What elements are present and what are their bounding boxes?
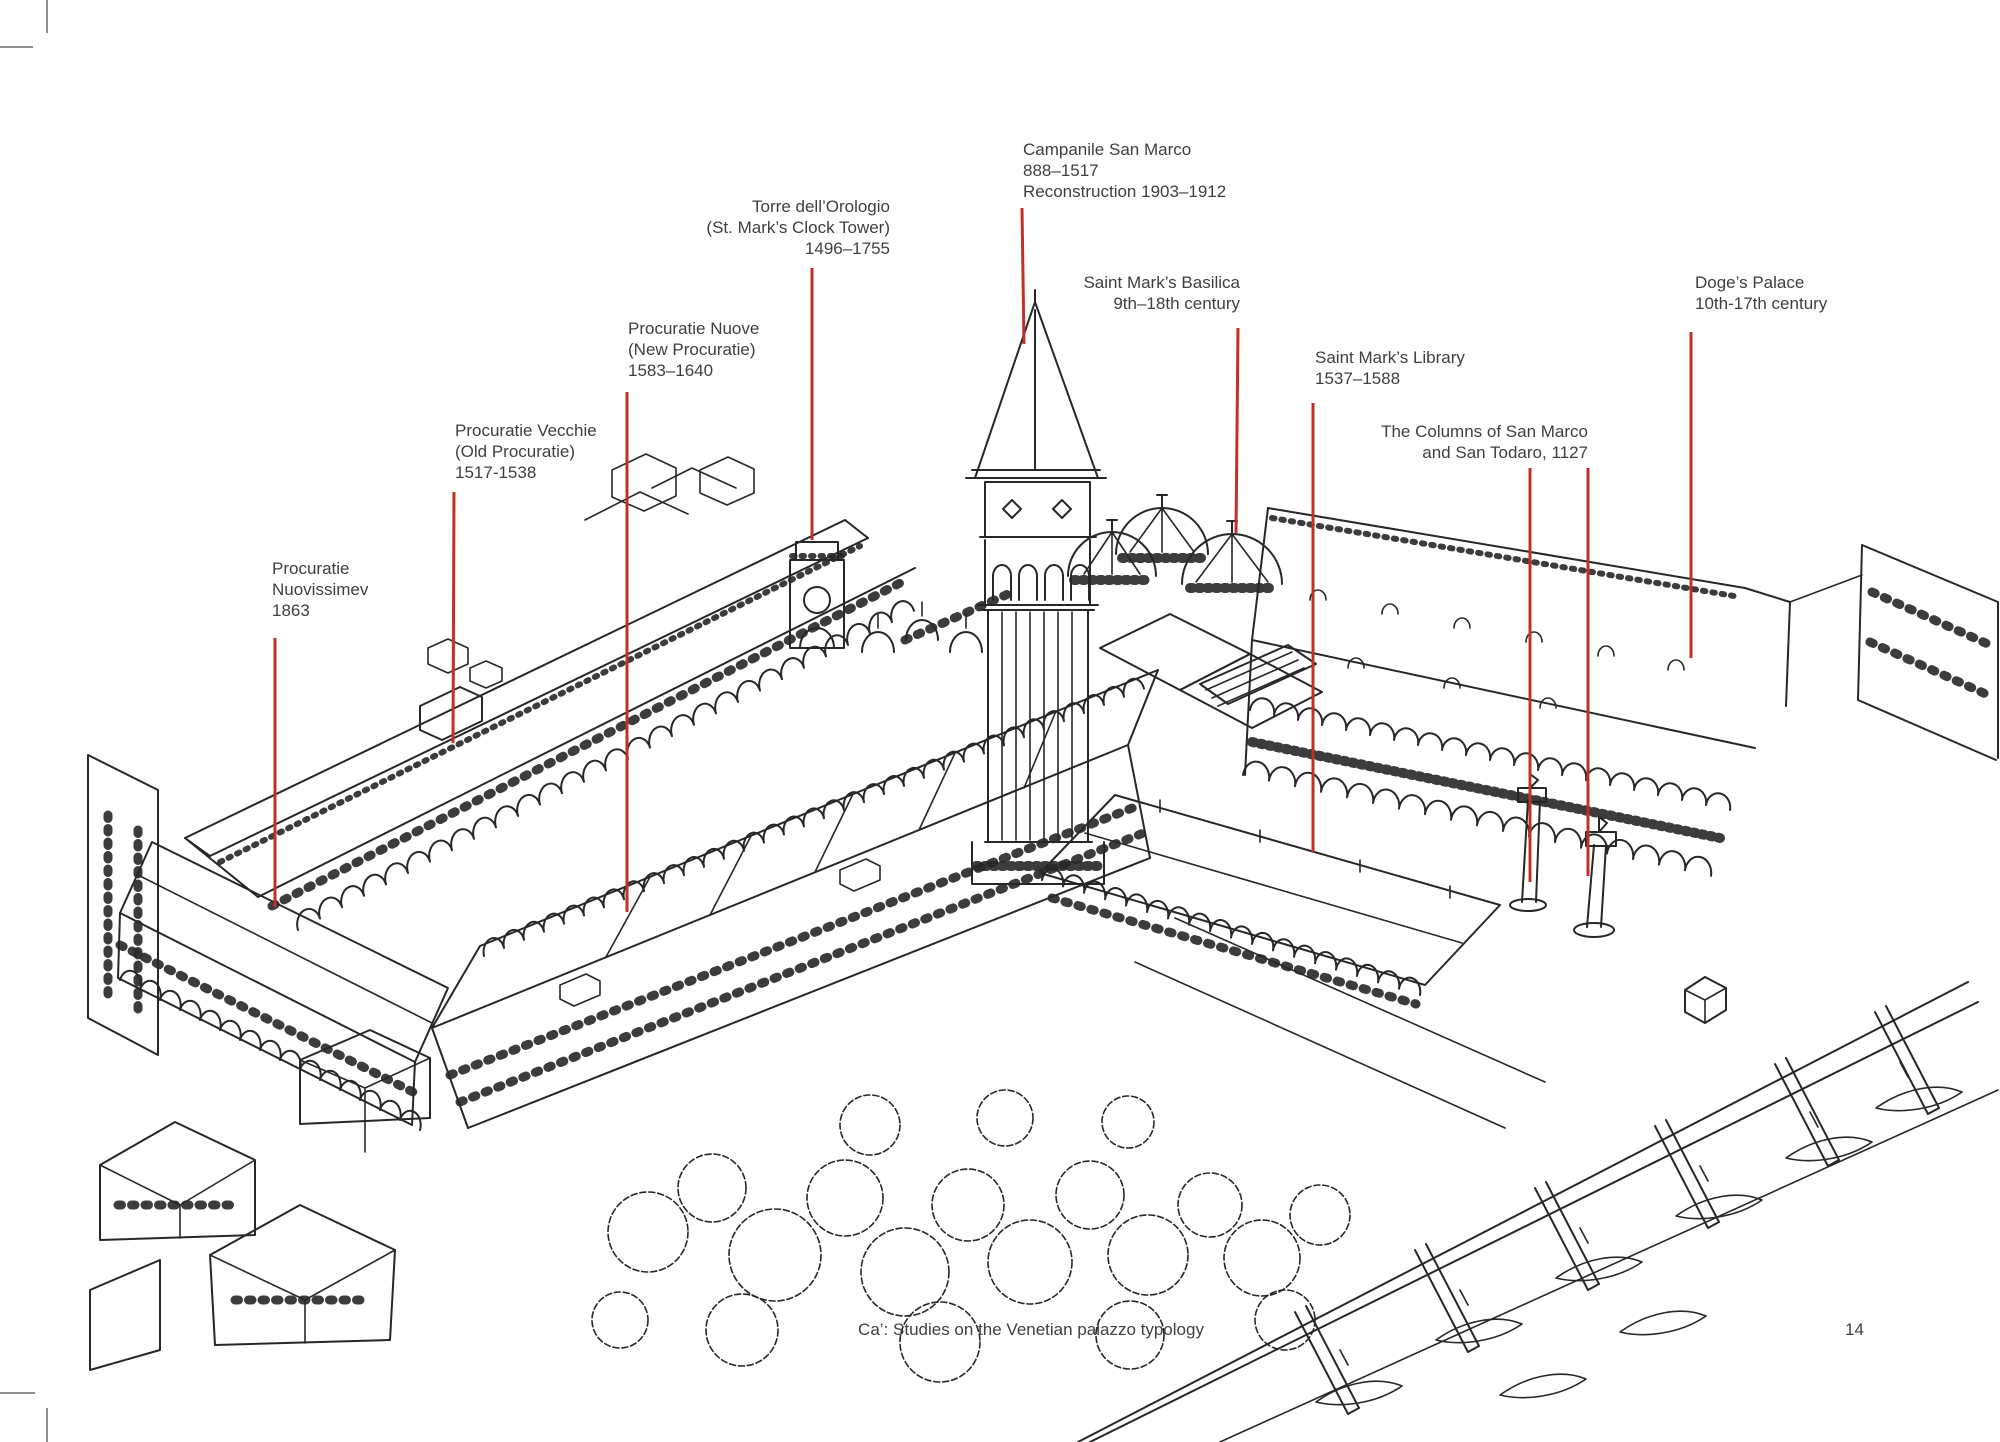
label-line: Reconstruction 1903–1912 xyxy=(1023,181,1226,202)
library-drawing xyxy=(1040,795,1500,1004)
leader-lines xyxy=(275,208,1691,912)
label-line: 1517-1538 xyxy=(455,462,597,483)
label-line: (New Procuratie) xyxy=(628,339,759,360)
label-line: The Columns of San Marco xyxy=(1381,421,1588,442)
label-saint-marks-library: Saint Mark’s Library 1537–1588 xyxy=(1315,347,1465,389)
label-line: 888–1517 xyxy=(1023,160,1226,181)
label-line: Saint Mark’s Basilica xyxy=(1083,272,1240,293)
label-line: Procuratie xyxy=(272,558,368,579)
label-line: (Old Procuratie) xyxy=(455,441,597,462)
label-line: Campanile San Marco xyxy=(1023,139,1226,160)
campanile-drawing xyxy=(966,290,1106,884)
doges-palace-drawing xyxy=(1243,508,1790,876)
label-line: 9th–18th century xyxy=(1083,293,1240,314)
label-doges-palace: Doge’s Palace 10th-17th century xyxy=(1695,272,1827,314)
label-line: Procuratie Nuove xyxy=(628,318,759,339)
label-line: 1496–1755 xyxy=(706,238,890,259)
label-procuratie-vecchie: Procuratie Vecchie (Old Procuratie) 1517… xyxy=(455,420,597,483)
leader-campanile xyxy=(1022,208,1024,344)
procuratie-nuove-drawing xyxy=(432,670,1158,1128)
piazza-san-marco-drawing xyxy=(0,0,2000,1442)
houses-drawing xyxy=(90,1030,430,1370)
right-edge-building-drawing xyxy=(1790,545,1998,760)
label-line: and San Todaro, 1127 xyxy=(1381,442,1588,463)
crop-marks xyxy=(0,0,47,1442)
piazzetta-paving-drawing xyxy=(1135,918,1545,1128)
footer-caption: Ca’: Studies on the Venetian palazzo typ… xyxy=(62,1320,2000,1340)
label-line: Doge’s Palace xyxy=(1695,272,1827,293)
label-line: 1583–1640 xyxy=(628,360,759,381)
label-campanile: Campanile San Marco 888–1517 Reconstruct… xyxy=(1023,139,1226,202)
label-line: 1537–1588 xyxy=(1315,368,1465,389)
background-rooftops-drawing xyxy=(585,454,754,520)
label-line: Torre dell’Orologio xyxy=(706,196,890,217)
label-line: 10th-17th century xyxy=(1695,293,1827,314)
label-line: 1863 xyxy=(272,600,368,621)
leader-basilica xyxy=(1236,328,1238,533)
book-page: Campanile San Marco 888–1517 Reconstruct… xyxy=(0,0,2000,1442)
label-torre-orologio: Torre dell’Orologio (St. Mark’s Clock To… xyxy=(706,196,890,259)
piazza-kiosks-drawing xyxy=(428,639,502,688)
label-line: Procuratie Vecchie xyxy=(455,420,597,441)
label-procuratie-nuovissime: Procuratie Nuovissimev 1863 xyxy=(272,558,368,621)
label-line: Nuovissimev xyxy=(272,579,368,600)
label-columns-san-marco-san-todaro: The Columns of San Marco and San Todaro,… xyxy=(1381,421,1588,463)
page-number: 14 xyxy=(1845,1320,1864,1340)
waterfront-drawing xyxy=(1078,977,1998,1442)
label-basilica: Saint Mark’s Basilica 9th–18th century xyxy=(1083,272,1240,314)
label-line: Saint Mark’s Library xyxy=(1315,347,1465,368)
basilica-drawing xyxy=(862,495,1322,728)
label-procuratie-nuove: Procuratie Nuove (New Procuratie) 1583–1… xyxy=(628,318,759,381)
label-line: (St. Mark’s Clock Tower) xyxy=(706,217,890,238)
leader-procuratie-vecchie xyxy=(453,492,454,743)
